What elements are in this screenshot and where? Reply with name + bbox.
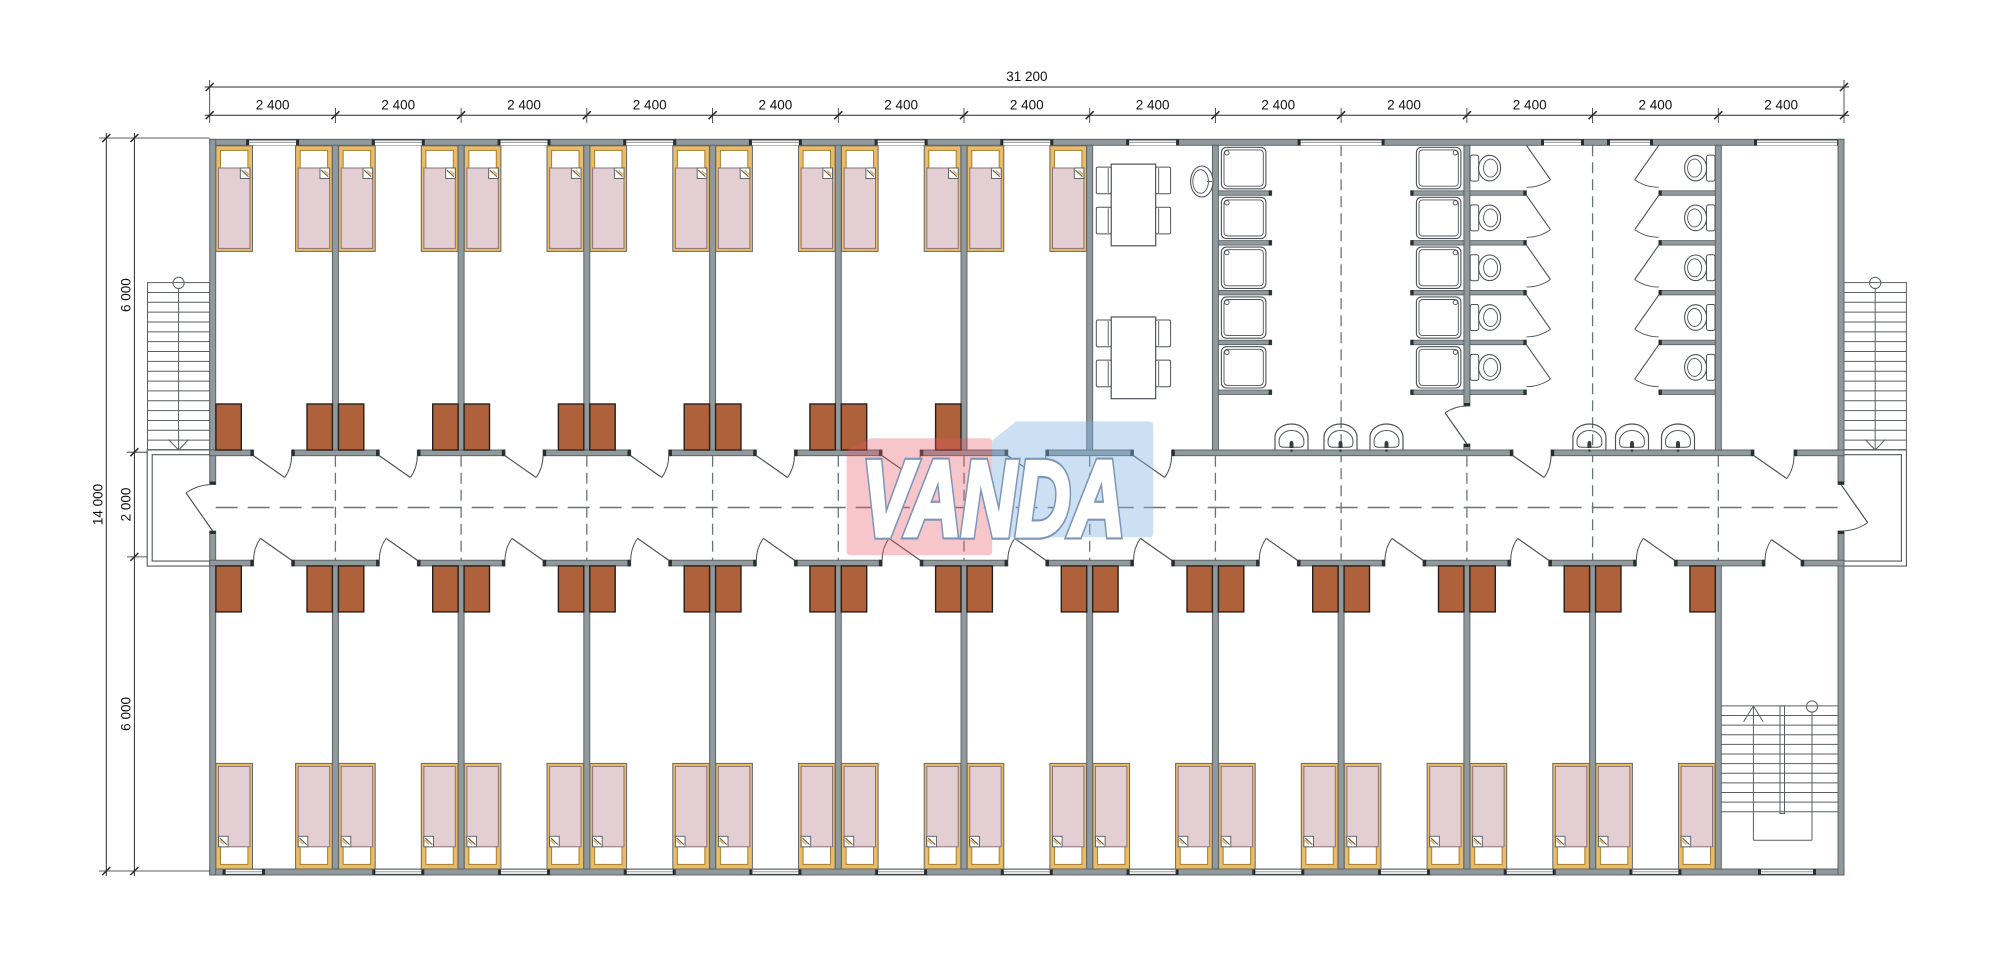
svg-text:2 000: 2 000 — [119, 488, 134, 522]
svg-text:2 400: 2 400 — [884, 98, 918, 113]
svg-text:2 400: 2 400 — [1639, 98, 1673, 113]
svg-text:2 400: 2 400 — [1513, 98, 1547, 113]
svg-text:6 000: 6 000 — [119, 697, 134, 731]
svg-text:2 400: 2 400 — [633, 98, 667, 113]
svg-text:6 000: 6 000 — [119, 278, 134, 312]
svg-text:VANDA: VANDA — [862, 438, 1125, 558]
svg-text:2 400: 2 400 — [1010, 98, 1044, 113]
svg-text:2 400: 2 400 — [381, 98, 415, 113]
svg-text:2 400: 2 400 — [1136, 98, 1170, 113]
svg-text:2 400: 2 400 — [507, 98, 541, 113]
svg-text:14 000: 14 000 — [91, 484, 106, 525]
svg-text:2 400: 2 400 — [1261, 98, 1295, 113]
svg-text:2 400: 2 400 — [1387, 98, 1421, 113]
svg-text:31 200: 31 200 — [1006, 69, 1047, 84]
svg-text:2 400: 2 400 — [256, 98, 290, 113]
svg-text:2 400: 2 400 — [1764, 98, 1798, 113]
svg-text:2 400: 2 400 — [759, 98, 793, 113]
